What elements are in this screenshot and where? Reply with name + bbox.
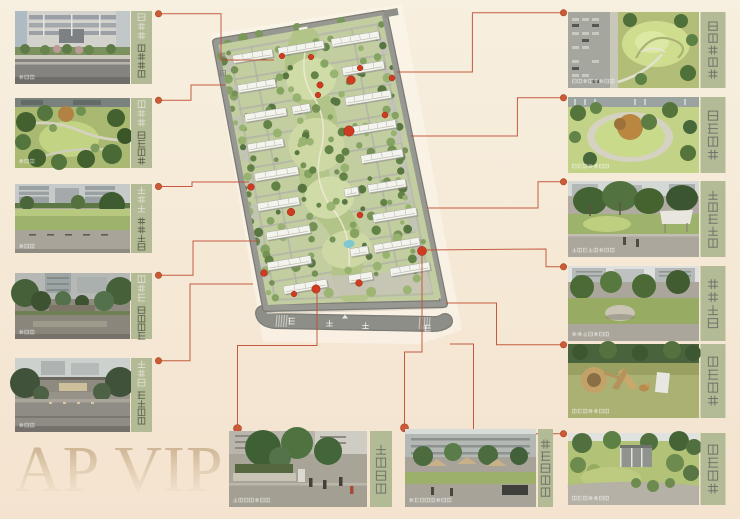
svg-text:AP VIP: AP VIP — [14, 433, 224, 506]
